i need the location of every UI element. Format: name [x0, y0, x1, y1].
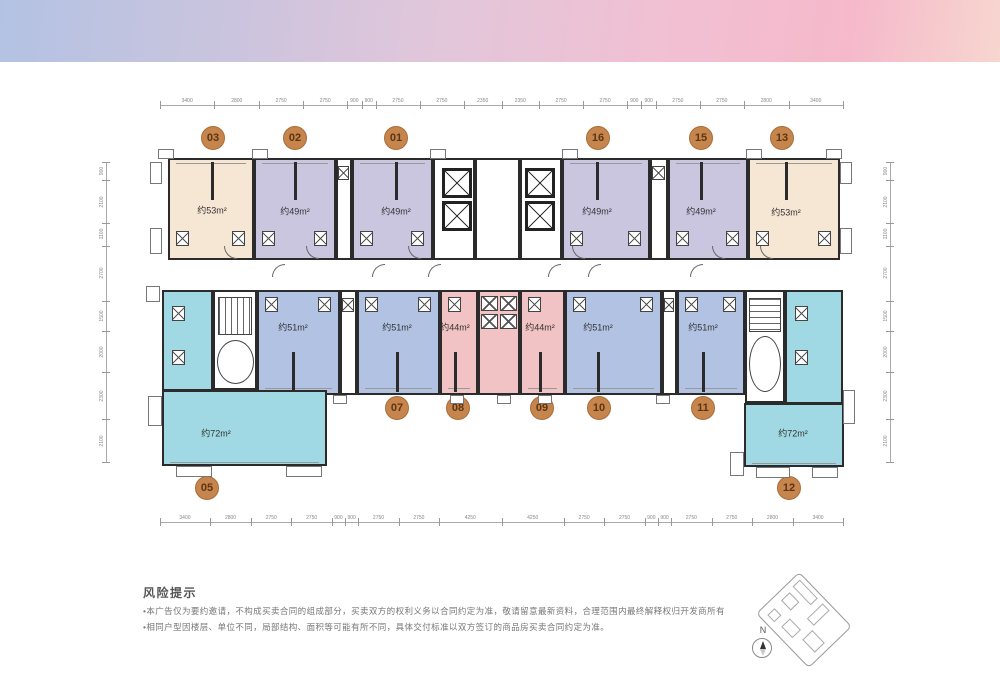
dimension-value: 900: [630, 98, 638, 104]
dimension-value: 2750: [600, 98, 611, 104]
unit-area-label-02: 约49m²: [280, 205, 310, 218]
site-plan-building-outline: [781, 618, 801, 638]
window-line-unit-07: [365, 388, 432, 389]
dimension-tick: [843, 518, 844, 526]
dimension-tick: [251, 518, 252, 526]
dimension-value: 2350: [477, 98, 488, 104]
dimension-value: 4250: [465, 515, 476, 521]
dimension-tick: [886, 180, 894, 181]
unit-area-label-01: 约49m²: [381, 205, 411, 218]
unit-number-badge-11: 11: [691, 396, 715, 420]
dimension-tick: [886, 246, 894, 247]
balcony-bump: [538, 395, 552, 404]
elevator-shaft-icon: [525, 201, 555, 231]
dimension-value: 2800: [225, 515, 236, 521]
unit-number-badge-13: 13: [770, 126, 794, 150]
fixture-unit-03: [176, 231, 189, 246]
site-plan-building-outline: [807, 603, 830, 625]
dimension-tick: [627, 101, 628, 109]
dimension-tick: [102, 223, 110, 224]
fixture-unit-15: [726, 231, 739, 246]
stair-treads-left: [218, 297, 252, 335]
dimension-value: 2750: [619, 515, 630, 521]
balcony-bump: [158, 149, 174, 159]
elevator-shaft-icon: [442, 168, 472, 198]
dimension-value: 2750: [392, 98, 403, 104]
fixture-unit-01: [360, 231, 373, 246]
balcony-bump: [450, 395, 464, 404]
inner-wall-unit-03: [211, 162, 214, 200]
fixture-unit-13: [818, 231, 831, 246]
dimension-tick: [160, 518, 161, 526]
dimension-value: 900: [365, 98, 373, 104]
balcony-bump: [150, 162, 162, 184]
dimension-value: 900: [883, 167, 889, 175]
dimension-tick: [886, 223, 894, 224]
balcony-bump: [812, 467, 838, 478]
elevator-shaft-icon: [442, 201, 472, 231]
unit-number-badge-12: 12: [777, 476, 801, 500]
duct-icon: [342, 298, 354, 312]
dimension-value: 3400: [812, 515, 823, 521]
dimension-tick: [583, 101, 584, 109]
dimension-tick: [102, 246, 110, 247]
fixture-unit-06: [265, 297, 278, 312]
fixture-unit-15: [676, 231, 689, 246]
dimension-tick: [102, 419, 110, 420]
dimension-tick: [102, 301, 110, 302]
dimension-value: 2300: [883, 390, 889, 401]
balcony-bump: [333, 395, 347, 404]
balcony-bump: [562, 149, 578, 159]
dimension-tick: [347, 101, 348, 109]
fixture-unit-11: [685, 297, 698, 312]
dimension-tick: [886, 162, 894, 163]
dimension-tick: [700, 101, 701, 109]
dimension-value: 2000: [99, 346, 105, 357]
dimension-value: 2100: [883, 196, 889, 207]
window-line-unit-09: [528, 388, 557, 389]
compass-needle: [760, 641, 766, 649]
dimension-value: 1500: [99, 311, 105, 322]
inner-wall-unit-01: [395, 162, 398, 200]
dimension-tick: [358, 518, 359, 526]
unit-area-label-15: 约49m²: [686, 205, 716, 218]
window-line-unit-12: [752, 463, 836, 464]
unit-number-badge-05: 05: [195, 476, 219, 500]
dimension-tick: [399, 518, 400, 526]
fixture-unit-02: [262, 231, 275, 246]
inner-wall-unit-07: [396, 352, 399, 392]
inner-wall-unit-09: [539, 352, 542, 392]
door-arc: [272, 264, 285, 277]
dimension-value: 2750: [266, 515, 277, 521]
unit-area-label-11: 约51m²: [688, 321, 718, 334]
dimension-tick: [886, 301, 894, 302]
elevator-shaft-icon: [525, 168, 555, 198]
fixture-unit-03: [232, 231, 245, 246]
balcony-bump: [252, 149, 268, 159]
dimension-value: 900: [644, 98, 652, 104]
site-plan-building-outline: [802, 630, 825, 653]
dimension-value: 2300: [99, 390, 105, 401]
dimension-value: 4250: [527, 515, 538, 521]
fixture-unit-08: [448, 297, 461, 312]
unit-number-badge-02: 02: [283, 126, 307, 150]
dimension-tick: [303, 101, 304, 109]
balcony-bump: [176, 466, 212, 477]
window-line-unit-11: [685, 388, 737, 389]
unit-09: [520, 290, 565, 395]
unit-12: [785, 290, 843, 404]
dimension-tick: [539, 101, 540, 109]
site-plan-building-outline: [767, 608, 781, 622]
dimension-value: 2700: [99, 268, 105, 279]
unit-area-label-07: 约51m²: [382, 321, 412, 334]
dimension-value: 2000: [883, 346, 889, 357]
duct-icon: [481, 314, 498, 329]
dimension-value: 2750: [320, 98, 331, 104]
inner-wall-unit-02: [294, 162, 297, 200]
unit-05-room: [162, 390, 327, 466]
dimension-tick: [712, 518, 713, 526]
dimension-tick: [102, 162, 110, 163]
compass-north-label: N: [757, 625, 769, 635]
dimension-tick: [502, 518, 503, 526]
dimension-tick: [641, 101, 642, 109]
inner-wall-unit-13: [785, 162, 788, 200]
dimension-value: 2750: [373, 515, 384, 521]
inner-wall-unit-08: [454, 352, 457, 392]
window-line-unit-15: [676, 163, 740, 164]
unit-area-label-06: 约51m²: [278, 321, 308, 334]
dimension-tick: [102, 331, 110, 332]
unit-number-badge-03: 03: [201, 126, 225, 150]
fixture-unit-13: [756, 231, 769, 246]
dimension-value: 2100: [883, 435, 889, 446]
dimension-value: 2750: [436, 98, 447, 104]
inner-wall-unit-15: [700, 162, 703, 200]
duct-icon: [338, 166, 349, 180]
dimension-value: 2100: [99, 196, 105, 207]
unit-number-badge-07: 07: [385, 396, 409, 420]
inner-wall-unit-11: [702, 352, 705, 392]
site-plan-thumbnail: [766, 590, 840, 648]
dimension-value: 2800: [761, 98, 772, 104]
balcony-bump: [148, 396, 162, 426]
dimension-value: 900: [348, 515, 356, 521]
fixture-unit-07: [418, 297, 431, 312]
duct-icon: [500, 296, 517, 311]
dimension-value: 1500: [883, 311, 889, 322]
dimension-line-right: [890, 162, 891, 462]
fixture-unit-02: [314, 231, 327, 246]
window-line-unit-06: [265, 388, 332, 389]
dimension-tick: [345, 518, 346, 526]
fixture-unit-10: [640, 297, 653, 312]
dimension-line-left: [106, 162, 107, 462]
window-line-unit-05: [170, 462, 319, 463]
dimension-value: 900: [99, 167, 105, 175]
dimension-value: 2800: [231, 98, 242, 104]
fixture-unit-07: [365, 297, 378, 312]
dimension-tick: [362, 101, 363, 109]
balcony-bump: [430, 149, 446, 159]
balcony-bump: [656, 395, 670, 404]
dimension-value: 2750: [726, 515, 737, 521]
fixture-unit-16: [570, 231, 583, 246]
stair-oval-right: [749, 336, 781, 392]
balcony-bump: [286, 466, 322, 477]
fixture-unit-12: [795, 306, 808, 321]
dimension-tick: [102, 372, 110, 373]
door-arc: [428, 264, 441, 277]
dimension-tick: [332, 518, 333, 526]
unit-area-label-03: 约53m²: [197, 204, 227, 217]
dimension-tick: [102, 462, 110, 463]
dimension-tick: [102, 180, 110, 181]
balcony-bump: [146, 286, 160, 302]
site-plan-building-outline: [781, 592, 799, 610]
dimension-value: 2750: [716, 98, 727, 104]
balcony-bump: [840, 162, 852, 184]
dimension-value: 2700: [883, 268, 889, 279]
dimension-tick: [886, 462, 894, 463]
door-arc: [372, 264, 385, 277]
dimension-tick: [259, 101, 260, 109]
balcony-bump: [730, 452, 744, 476]
dimension-value: 1100: [883, 229, 889, 240]
stair-oval-left: [217, 340, 254, 384]
fixture-unit-05: [172, 350, 185, 365]
fixture-unit-06: [318, 297, 331, 312]
dimension-tick: [886, 419, 894, 420]
balcony-bump: [497, 395, 511, 404]
compass-dial: [752, 638, 772, 658]
unit-area-label-08: 约44m²: [440, 321, 470, 334]
fixture-unit-01: [411, 231, 424, 246]
floor-plan: 约53m²03约49m²02约49m²01约49m²16约49m²15约53m²…: [0, 0, 1000, 560]
dimension-value: 2750: [579, 515, 590, 521]
dimension-value: 2100: [99, 435, 105, 446]
dimension-tick: [439, 518, 440, 526]
fixture-unit-05: [172, 306, 185, 321]
door-arc: [548, 264, 561, 277]
dimension-tick: [886, 372, 894, 373]
dimension-value: 900: [660, 515, 668, 521]
dimension-value: 1100: [99, 229, 105, 240]
unit-area-label-05: 约72m²: [201, 427, 231, 440]
balcony-bump: [150, 228, 162, 254]
dimension-value: 3400: [810, 98, 821, 104]
door-arc: [588, 264, 601, 277]
dimension-tick: [214, 101, 215, 109]
fixture-unit-09: [528, 297, 541, 312]
balcony-bump: [826, 149, 842, 159]
dimension-tick: [160, 101, 161, 109]
unit-number-badge-10: 10: [587, 396, 611, 420]
unit-number-badge-16: 16: [586, 126, 610, 150]
dimension-tick: [376, 101, 377, 109]
dimension-value: 900: [334, 515, 342, 521]
window-line-unit-16: [570, 163, 642, 164]
dimension-value: 900: [350, 98, 358, 104]
dimension-tick: [671, 518, 672, 526]
dimension-tick: [793, 518, 794, 526]
duct-icon: [664, 298, 674, 312]
dimension-tick: [886, 331, 894, 332]
balcony-bump: [843, 390, 855, 424]
door-arc: [690, 264, 703, 277]
dimension-tick: [291, 518, 292, 526]
window-line-unit-01: [360, 163, 425, 164]
dimension-value: 3400: [179, 515, 190, 521]
unit-number-badge-15: 15: [689, 126, 713, 150]
dimension-tick: [658, 518, 659, 526]
dimension-tick: [564, 518, 565, 526]
balcony-bump: [746, 149, 762, 159]
dimension-value: 2750: [306, 515, 317, 521]
dimension-value: 900: [647, 515, 655, 521]
dimension-value: 2750: [413, 515, 424, 521]
window-line-unit-08: [448, 388, 470, 389]
elevator-lobby: [475, 158, 520, 260]
duct-icon: [652, 166, 665, 180]
dimension-value: 2750: [686, 515, 697, 521]
unit-number-badge-01: 01: [384, 126, 408, 150]
fixture-unit-10: [573, 297, 586, 312]
dimension-tick: [502, 101, 503, 109]
stair-treads-right: [749, 298, 781, 332]
fixture-unit-12: [795, 350, 808, 365]
unit-05: [162, 290, 213, 391]
dimension-value: 2800: [767, 515, 778, 521]
inner-wall-unit-06: [292, 352, 295, 392]
unit-area-label-09: 约44m²: [525, 321, 555, 334]
unit-area-label-12: 约72m²: [778, 427, 808, 440]
fixture-unit-16: [628, 231, 641, 246]
dimension-tick: [210, 518, 211, 526]
balcony-bump: [756, 467, 790, 478]
dimension-tick: [420, 101, 421, 109]
dimension-value: 2350: [515, 98, 526, 104]
window-line-unit-10: [573, 388, 654, 389]
dimension-tick: [752, 518, 753, 526]
window-line-unit-13: [756, 163, 832, 164]
duct-icon: [500, 314, 517, 329]
dimension-tick: [645, 518, 646, 526]
inner-wall-unit-10: [597, 352, 600, 392]
fixture-unit-11: [723, 297, 736, 312]
balcony-bump: [840, 228, 852, 254]
dimension-value: 2750: [672, 98, 683, 104]
dimension-tick: [744, 101, 745, 109]
inner-wall-unit-16: [596, 162, 599, 200]
compass-needle-south: [760, 649, 766, 656]
unit-area-label-13: 约53m²: [771, 206, 801, 219]
dimension-value: 3400: [182, 98, 193, 104]
unit-area-label-10: 约51m²: [583, 321, 613, 334]
dimension-tick: [789, 101, 790, 109]
dimension-tick: [843, 101, 844, 109]
dimension-value: 2750: [276, 98, 287, 104]
dimension-tick: [604, 518, 605, 526]
unit-area-label-16: 约49m²: [582, 205, 612, 218]
dimension-tick: [656, 101, 657, 109]
dimension-tick: [464, 101, 465, 109]
duct-icon: [481, 296, 498, 311]
dimension-value: 2750: [556, 98, 567, 104]
